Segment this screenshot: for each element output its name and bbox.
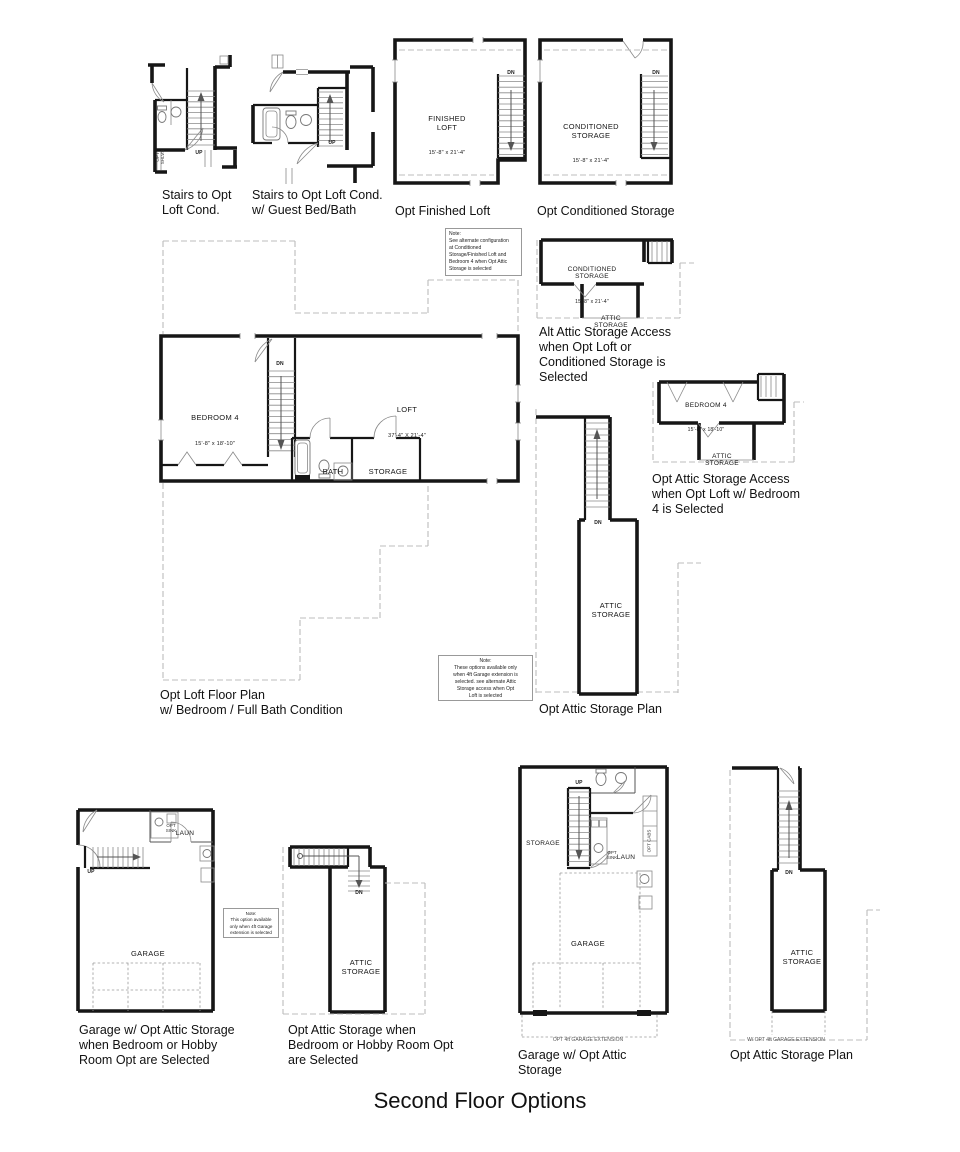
caption-attic-plan-mid: Opt Attic Storage Plan [539,702,662,717]
caption-attic-plan-right: Opt Attic Storage Plan [730,1048,853,1063]
storage-label-garage: STORAGE [526,822,560,865]
caption-stairs-guest: Stairs to Opt Loft Cond. w/ Guest Bed/Ba… [252,188,383,218]
page-title: Second Floor Options [374,1088,587,1114]
room-name: BEDROOM 4 [191,414,239,423]
room-name: ATTIC STORAGE [705,453,739,468]
room-name: GARAGE [131,950,165,959]
room-name: ATTIC STORAGE [342,959,381,976]
garage-extension-w-label: W/ OPT 4ft GARAGE EXTENSION [747,1038,825,1044]
room-name: LOFT [388,406,426,415]
dn-label-attic-bottom-right: DN [785,871,793,877]
plan-garage-right-drawing [515,756,673,1044]
note-garage-extension-options: Note: These options available only when … [438,655,533,701]
opt-shlvs-label: OPT SHLVS [156,150,166,164]
caption-finished-loft: Opt Finished Loft [395,204,490,219]
up-label-garage-right: UP [575,781,582,787]
plan-stairs-loft-drawing [145,55,241,185]
conditioned-storage-label: CONDITIONED STORAGE 15'-8" x 21'-4" [563,105,619,183]
room-name: ATTIC STORAGE [783,949,822,966]
room-name: LAUN [617,854,636,861]
caption-stairs-loft: Stairs to Opt Loft Cond. [162,188,231,218]
plan-attic-storage-mid-drawing [531,401,701,695]
dn-label-attic-bottom-left: DN [355,891,363,897]
bath-label: BATH [323,450,344,495]
up-label-stairs2: UP [328,141,335,147]
caption-attic-access-bedroom4: Opt Attic Storage Access when Opt Loft w… [652,472,800,517]
attic-storage-label-bottom-right: ATTIC STORAGE [783,931,822,984]
room-dims: 15'-8" x 18'-10" [685,427,727,433]
room-name: CONDITIONED STORAGE [568,266,617,281]
note-alternate-config: Note: See alternate configuration at Con… [445,228,522,276]
room-dims: 15'-8" x 18'-10" [191,441,239,448]
caption-attic-when: Opt Attic Storage when Bedroom or Hobby … [288,1023,453,1068]
room-dims: 37'-4" X 21'-4" [388,433,426,440]
opt-sink-label-right: OPT SINK [607,850,618,860]
caption-alt-attic-access: Alt Attic Storage Access when Opt Loft o… [539,325,671,385]
garage-label-left: GARAGE [131,932,165,977]
bedroom4-main-label: BEDROOM 4 15'-8" x 18'-10" [191,396,239,465]
loft-label: LOFT 37'-4" X 21'-4" [388,388,426,457]
garage-extension-label: OPT 4ft GARAGE EXTENSION [553,1038,623,1044]
plan-stairs-guest-drawing [252,52,374,187]
caption-conditioned-storage: Opt Conditioned Storage [537,204,675,219]
room-dims: 15'-8" x 21'-4" [428,150,465,157]
opt-sink-label-left: OPT SINK [166,823,177,833]
storage-label-loft: STORAGE [369,450,408,495]
plan-attic-storage-right-drawing [728,758,880,1046]
dn-label-attic-mid: DN [594,521,602,527]
room-name: BATH [323,468,344,477]
room-name: FINISHED LOFT [428,115,465,132]
room-name: STORAGE [369,468,408,477]
note-garage-extension-single: Note: This option available only when 4f… [223,908,279,938]
room-name: ATTIC STORAGE [592,602,631,619]
caption-garage-right: Garage w/ Opt Attic Storage [518,1048,626,1078]
floor-plan-sheet: Note: See alternate configuration at Con… [0,0,960,1152]
room-name: BEDROOM 4 [685,402,727,409]
up-label-stairs1: UP [195,151,202,157]
dn-label-loft-plan: DN [276,362,284,368]
room-name: GARAGE [571,940,605,949]
plan-garage-left-drawing [75,798,223,1018]
room-name: LAUN [176,830,195,837]
laundry-label-left: LAUN [176,812,195,855]
attic-storage-label-mid: ATTIC STORAGE [592,584,631,637]
caption-garage-left: Garage w/ Opt Attic Storage when Bedroom… [79,1023,235,1068]
opt-cabs-label: OPT CABS [648,830,653,853]
dn-label-conditioned-storage: DN [652,71,660,77]
room-dims: 15'-8" x 21'-4" [563,158,619,165]
up-label-garage-left: UP [87,870,94,876]
finished-loft-label: FINISHED LOFT 15'-8" x 21'-4" [428,97,465,175]
room-name: STORAGE [526,840,560,847]
dn-label-finished-loft: DN [507,71,515,77]
laundry-label-right: LAUN [617,836,636,879]
garage-label-right: GARAGE [571,922,605,967]
caption-loft-plan: Opt Loft Floor Plan w/ Bedroom / Full Ba… [160,688,343,718]
room-name: CONDITIONED STORAGE [563,123,619,140]
attic-storage-label-bottom-left: ATTIC STORAGE [342,941,381,994]
